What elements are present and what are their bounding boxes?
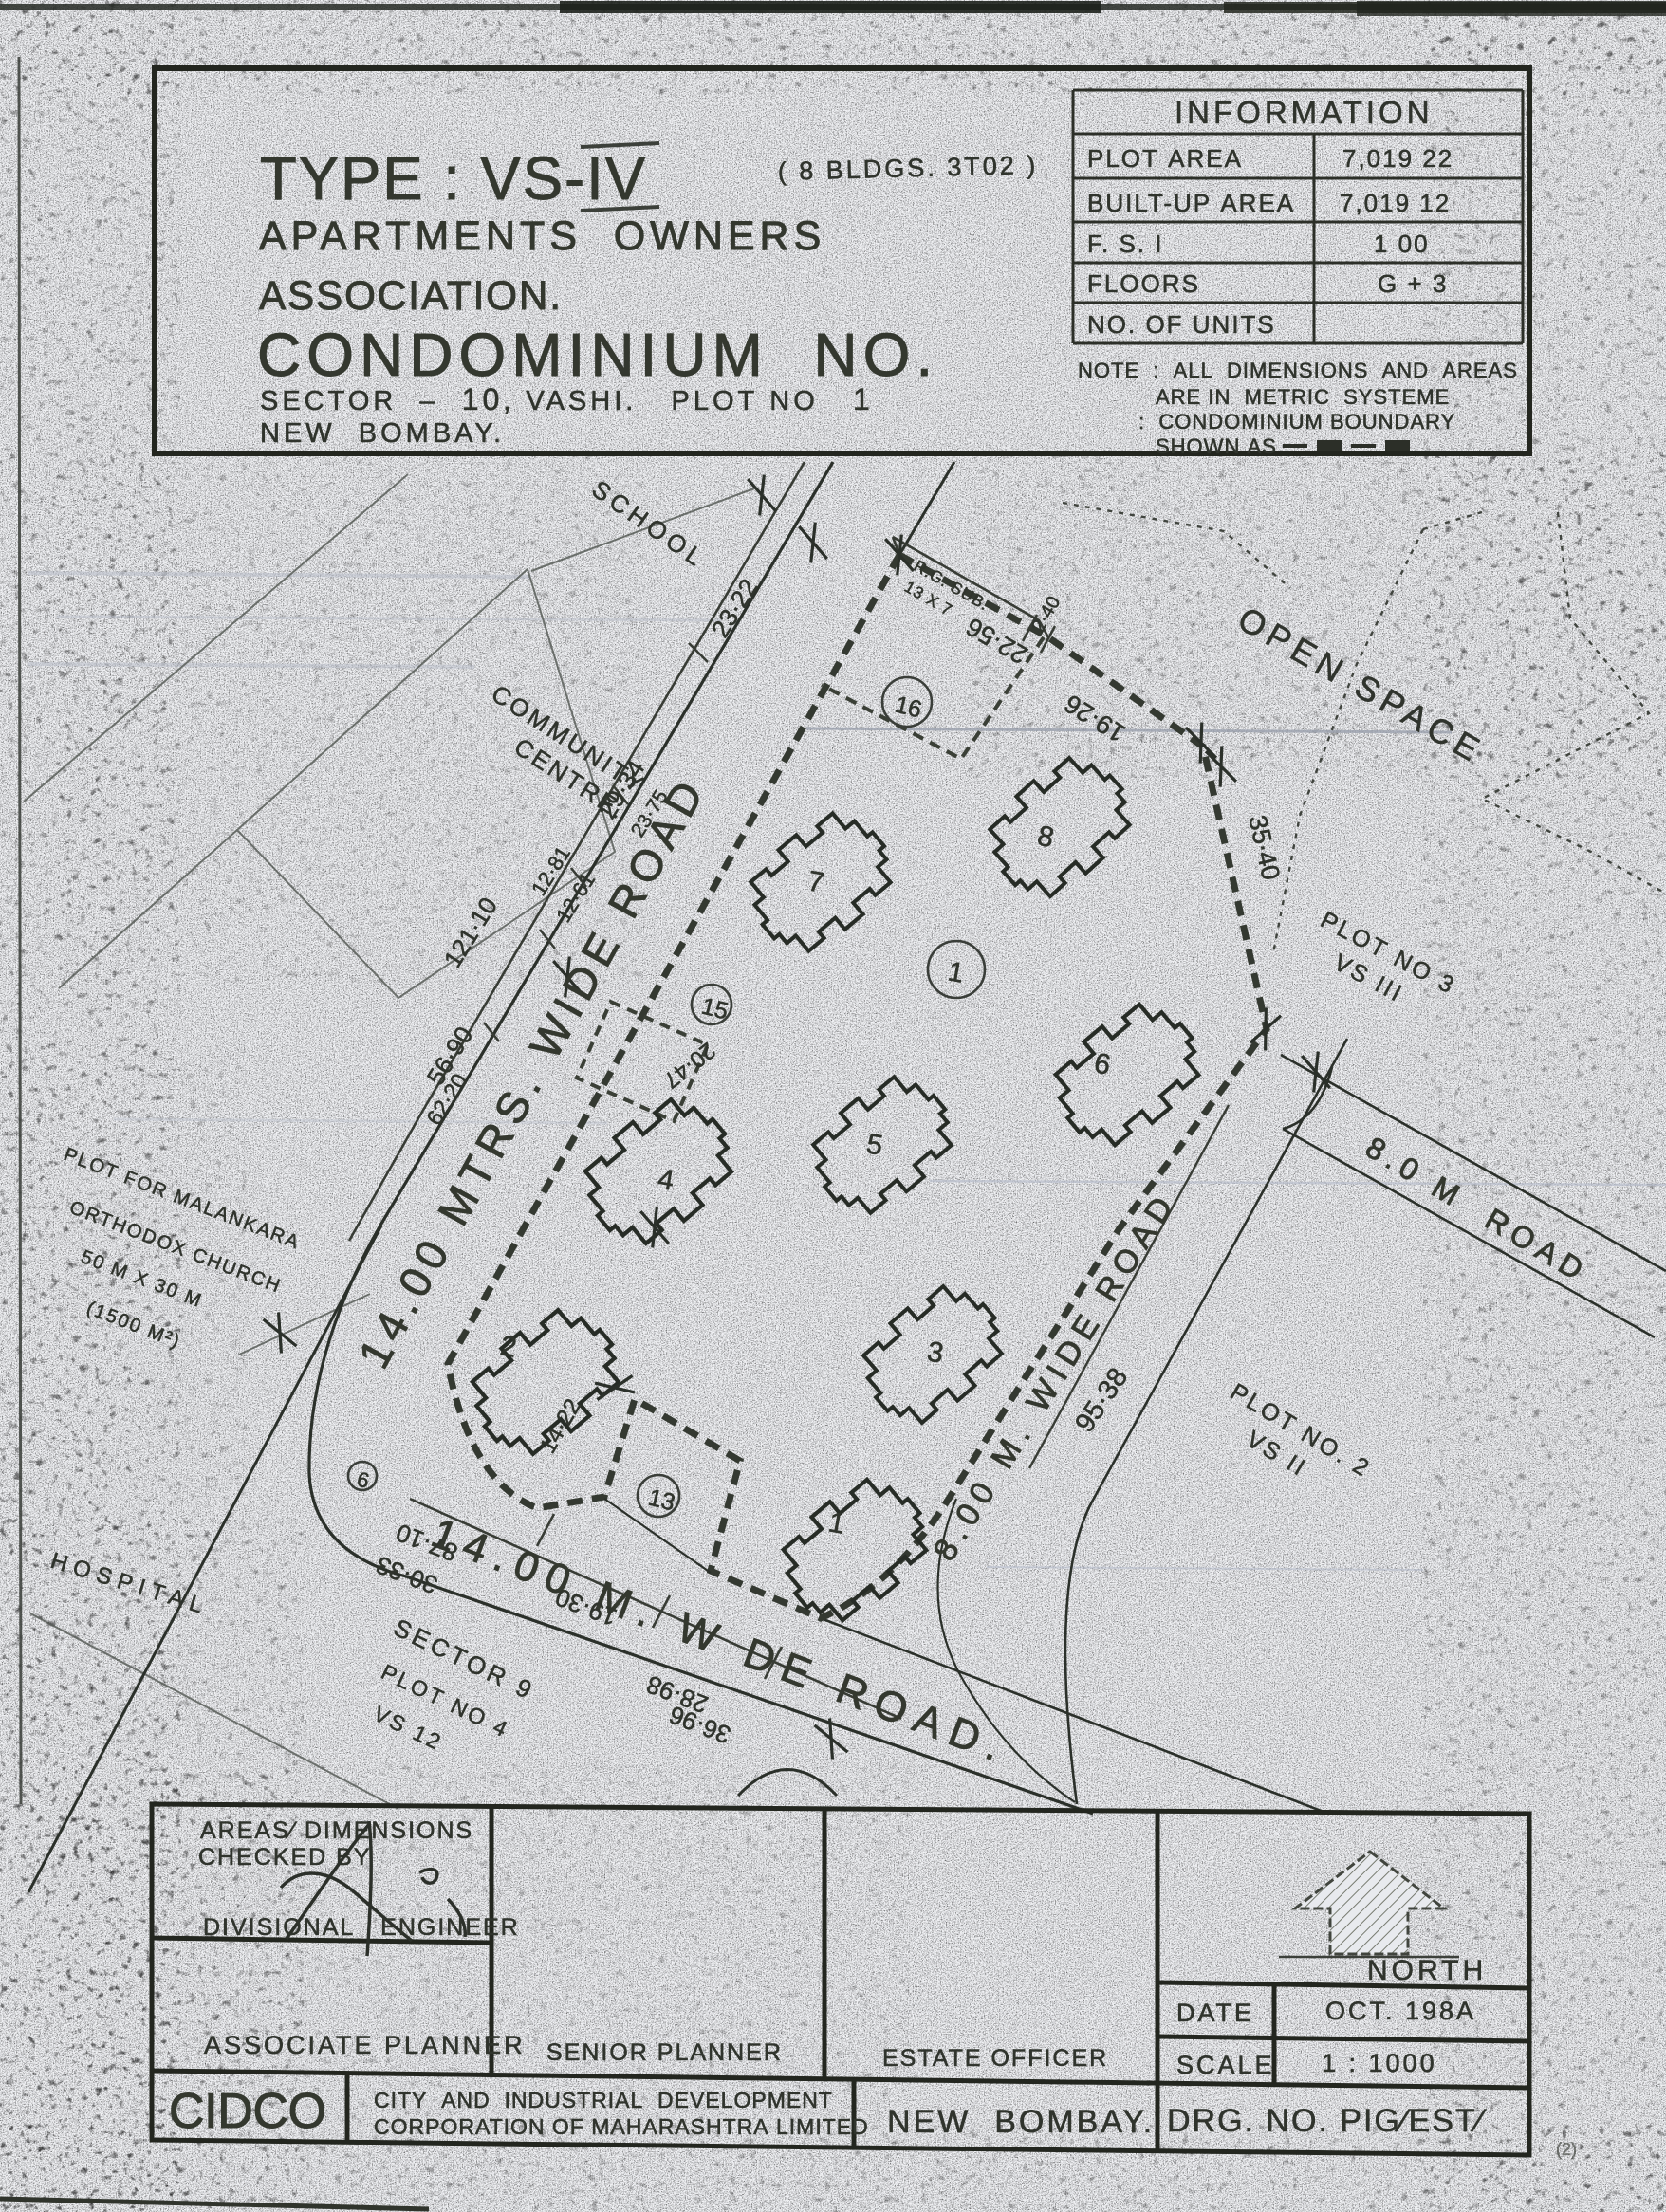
svg-text:: CONDOMINIUM BOUNDARY: : CONDOMINIUM BOUNDARY — [1138, 410, 1455, 433]
svg-text:CORPORATION OF MAHARASHTRA LIM: CORPORATION OF MAHARASHTRA LIMITED — [374, 2114, 869, 2139]
svg-text:CIDCO: CIDCO — [169, 2084, 328, 2139]
svg-text:1 00: 1 00 — [1374, 230, 1430, 258]
svg-text:NEW BOMBAY.: NEW BOMBAY. — [260, 418, 505, 449]
svg-text:APARTMENTS OWNERS: APARTMENTS OWNERS — [259, 213, 825, 259]
svg-text:DATE: DATE — [1176, 1999, 1254, 2027]
svg-text:AREAS⁄ DIMENSIONS: AREAS⁄ DIMENSIONS — [200, 1817, 473, 1844]
svg-text:SCALE: SCALE — [1176, 2051, 1275, 2079]
svg-text:ASSOCIATE PLANNER: ASSOCIATE PLANNER — [204, 2031, 526, 2059]
svg-text:BUILT-UP AREA: BUILT-UP AREA — [1087, 189, 1295, 217]
svg-text:NORTH: NORTH — [1367, 1955, 1487, 1986]
svg-text:7,019 12: 7,019 12 — [1340, 189, 1451, 217]
svg-text:CONDOMINIUM NO.: CONDOMINIUM NO. — [257, 321, 938, 389]
svg-text:ESTATE OFFICER: ESTATE OFFICER — [882, 2045, 1108, 2072]
svg-text:(2): (2) — [1556, 2140, 1577, 2159]
svg-text:ARE IN METRIC SYSTEME: ARE IN METRIC SYSTEME — [1156, 385, 1450, 409]
svg-text:ASSOCIATION.: ASSOCIATION. — [259, 273, 563, 319]
svg-text:SECTOR – 10, VASHI. PLOT N: SECTOR – 10, VASHI. PLOT NO 1 — [260, 382, 874, 416]
svg-text:7,019 22: 7,019 22 — [1342, 144, 1453, 173]
svg-text:FLOORS: FLOORS — [1087, 269, 1200, 298]
svg-text:SHOWN AS: SHOWN AS — [1156, 434, 1290, 458]
svg-text:NOTE : ALL DIMENSIONS AND: NOTE : ALL DIMENSIONS AND AREAS — [1078, 359, 1518, 382]
svg-text:NEW BOMBAY.: NEW BOMBAY. — [887, 2104, 1155, 2140]
svg-text:DIVISIONAL ENGINEER: DIVISIONAL ENGINEER — [203, 1914, 520, 1941]
svg-text:OCT. 198A: OCT. 198A — [1325, 1997, 1476, 2025]
svg-text:TYPE : VS-IV: TYPE : VS-IV — [260, 144, 647, 212]
svg-text:NO. OF UNITS: NO. OF UNITS — [1087, 310, 1276, 339]
svg-text:INFORMATION: INFORMATION — [1175, 95, 1434, 130]
svg-text:G + 3: G + 3 — [1378, 269, 1448, 298]
svg-text:DRG. NO. PIG⁄EST⁄: DRG. NO. PIG⁄EST⁄ — [1167, 2103, 1488, 2139]
svg-text:SENIOR PLANNER: SENIOR PLANNER — [546, 2039, 783, 2066]
svg-text:1 : 1000: 1 : 1000 — [1322, 2049, 1437, 2077]
svg-text:CITY AND INDUSTRIAL DEVELOP: CITY AND INDUSTRIAL DEVELOPMENT — [374, 2088, 833, 2112]
svg-text:PLOT AREA: PLOT AREA — [1087, 144, 1243, 173]
svg-text:F. S. I: F. S. I — [1087, 230, 1163, 258]
